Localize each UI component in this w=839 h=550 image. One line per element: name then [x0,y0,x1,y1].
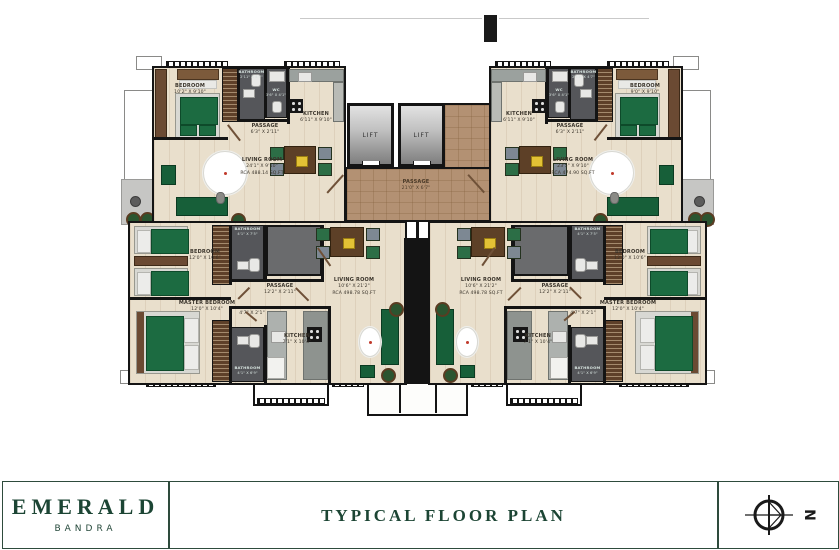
side-balcony [124,90,153,180]
lobby-label: 4'7" X 2'1" [562,311,604,318]
sofa [381,309,399,365]
living-room-label: LIVING ROOM 10'6" X 21'2" RCA 498.78 SQ.… [322,277,386,298]
deck-lamp-icon [130,196,141,207]
brand-location: BANDRA [54,524,116,534]
room-dim: 10'6" X 21'2" [449,284,513,291]
wc-label: WC 3'6" X 4'1" [265,88,287,98]
wardrobe [222,68,238,122]
room-dim: 2'11" X 4'7" [570,75,597,80]
kitchen-counter [491,69,546,82]
fridge [267,357,285,379]
room-dim: 6'3" X 2'11" [239,130,291,137]
dining-chair [507,228,521,241]
passage-label: PASSAGE 6'3" X 2'11" [544,123,596,137]
room-dim: 9'0" X 9'10" [613,90,677,97]
plant-icon [381,368,396,383]
room-dim: 2'11" X 4'7" [238,75,265,80]
bed-quilt [655,316,693,371]
room-rca: RCA 488.14 SQ.FT [230,171,294,178]
dining-chair [457,228,471,241]
wall [238,119,288,122]
bathroom-label: BATHROOM 4'1" X 6'9" [231,366,264,376]
wall [328,306,331,384]
dining-chair [507,246,521,259]
room-dim: 23'5" X 9'10" [541,164,605,171]
bed-pillow [639,125,656,136]
dining-table [330,227,364,257]
floor-plan-sheet: LIFT LIFT PASSAGE 21'0" X 6'7" BEDROOM 1… [0,0,839,550]
kitchen-sink [523,72,537,82]
lift-label: LIFT [401,106,442,164]
room-dim: 7'1" X 10'4" [268,340,326,347]
single-bed [647,268,701,296]
room-dim: 12'0" X 10'6" [599,256,661,263]
wall [264,225,267,280]
kitchen-label: KITCHEN 7'1" X 10'4" [268,333,326,347]
lobby-label: 4'7" X 2'1" [231,311,273,318]
deck-lamp-icon [694,196,705,207]
lamp-dot [369,341,372,344]
bed-pillow [640,345,655,370]
armchair [360,365,375,378]
dining-chair [505,163,519,176]
dining-chair [366,228,380,241]
dining-chair [366,246,380,259]
kitchen-label: KITCHEN 7'1" X 10'4" [509,333,567,347]
lift-shaft: LIFT [398,103,445,167]
side-table-lamp [456,327,478,357]
passage-label: PASSAGE 6'3" X 2'11" [239,123,291,137]
bathroom-label: BATHROOM 4'1" X 6'9" [571,366,604,376]
passage-label: PASSAGE 12'2" X 2'11" [252,283,308,297]
party-wall [404,238,431,384]
bathroom-label: BATHROOM 2'11" X 4'7" [570,70,597,80]
bed-pillow [640,318,655,343]
toilet [555,101,565,113]
bathroom-label: BATHROOM 4'1" X 7'5" [231,227,264,237]
room-dim: 12'0" X 10'6" [174,256,236,263]
wall [607,137,681,140]
bed-pillow [184,345,199,370]
bed [175,93,220,140]
vase [610,192,619,204]
bed-pillow [184,318,199,343]
room-dim: 21'0" X 6'7" [385,186,447,193]
fridge [550,357,568,379]
room-dim: 7'1" X 10'4" [509,340,567,347]
brand-name: EMERALD [12,496,159,518]
wardrobe [212,320,230,382]
room-dim: 4'1" X 7'5" [571,232,604,237]
single-bed [134,268,188,296]
bedroom-label: BEDROOM 10'2" X 9'10" [158,83,222,97]
room-dim: 4'7" X 2'1" [231,311,273,318]
table-decor [343,238,355,249]
living-room-label: LIVING ROOM 24'1" X 9'10" RCA 488.14 SQ.… [230,157,294,178]
wall [230,279,323,282]
passage-label: PASSAGE 12'2" X 2'11" [527,283,583,297]
sink [243,89,255,98]
bedroom-label: BEDROOM 9'0" X 9'10" [613,83,677,97]
wardrobe-panel [668,69,680,139]
master-bed [635,311,699,374]
dining-chair [318,147,332,160]
room-dim: 3'6" X 4'1" [548,93,570,98]
sink [237,261,249,270]
bed-quilt [650,271,688,296]
toilet [575,334,586,348]
entrance-protrusion [367,382,468,416]
dining-chair [457,246,471,259]
roof-ridge-line [499,18,649,19]
window-band [257,398,325,404]
wc-label: WC 3'6" X 4'1" [548,88,570,98]
room-dim: 6'11" X 9'10" [287,118,345,125]
room-dim: 4'7" X 2'1" [562,311,604,318]
title-block-brand: EMERALD BANDRA [2,481,169,549]
room-dim: 24'1" X 9'10" [230,164,294,171]
bed-pillow [199,125,216,136]
kitchen-label: KITCHEN 6'11" X 9'10" [490,111,548,125]
side-table-lamp [359,327,381,357]
room-dim: 6'3" X 2'11" [544,130,596,137]
living-room-label: LIVING ROOM 10'6" X 21'2" RCA 498.78 SQ.… [449,277,513,298]
lift-door [362,161,380,165]
bed-pillow [137,272,151,295]
toilet [272,101,282,113]
window-band [510,398,578,404]
dining-table [471,227,505,257]
armchair [460,365,475,378]
room-dim: 4'1" X 6'9" [571,371,604,376]
bedroom-label: BEDROOM 12'0" X 10'6" [599,249,661,263]
shower-tray [552,71,568,82]
headboard-shelf [616,69,658,80]
room-dim: 4'1" X 7'5" [231,232,264,237]
table-decor [296,156,308,167]
core-passage-label: PASSAGE 21'0" X 6'7" [385,179,447,193]
wall [512,279,605,282]
vase [216,192,225,204]
lamp-dot [611,172,614,175]
lamp-dot [224,172,227,175]
burners [535,102,538,105]
toilet [575,258,586,272]
mullion [399,384,401,413]
room-dim: 10'2" X 9'10" [158,90,222,97]
armchair [659,165,674,185]
plan-title: TYPICAL FLOOR PLAN [321,507,566,524]
bed-quilt [620,97,658,125]
roof-stack [484,15,497,42]
bed [615,93,660,140]
lift-label: LIFT [350,106,391,164]
sofa [436,309,454,365]
sink [586,336,598,345]
dining-chair [316,228,330,241]
burners [292,102,295,105]
wardrobe [597,68,613,122]
plant-icon [389,302,404,317]
room-dim: 3'6" X 4'1" [265,93,287,98]
toilet [249,334,260,348]
bedroom-label: BEDROOM 12'0" X 10'6" [174,249,236,263]
bed-pillow [620,125,637,136]
lift-shaft: LIFT [347,103,394,167]
sink [580,89,592,98]
mullion [435,384,437,413]
dining-chair [318,163,332,176]
shower-tray [269,71,285,82]
side-balcony [682,90,711,180]
core-passage-floor [443,103,492,169]
room-rca: RCA 474.90 SQ.FT [541,171,605,178]
room-dim: 12'2" X 2'11" [252,290,308,297]
bathroom-label: BATHROOM 4'1" X 7'5" [571,227,604,237]
plant-icon [435,302,450,317]
utility-room [266,225,322,276]
bed-pillow [137,230,151,253]
headboard-shelf [177,69,219,80]
bed-quilt [151,271,189,296]
bed-quilt [180,97,218,125]
room-rca: RCA 498.78 SQ.FT [322,291,386,298]
title-block-compass: N [718,481,839,549]
armchair [161,165,176,185]
roof-ridge-line [300,18,482,19]
compass-north-letter: N [801,509,817,521]
wall [547,119,597,122]
title-block-title: TYPICAL FLOOR PLAN [169,481,718,549]
room-dim: 6'11" X 9'10" [490,118,548,125]
lift-door [413,161,431,165]
lamp-dot [466,341,469,344]
room-dim: 12'2" X 2'11" [527,290,583,297]
room-dim: 4'1" X 6'9" [231,371,264,376]
sink [237,336,249,345]
utility-room [513,225,569,276]
wardrobe [605,320,623,382]
kitchen-label: KITCHEN 6'11" X 9'10" [287,111,345,125]
kitchen-counter [289,69,344,82]
room-rca: RCA 498.78 SQ.FT [449,291,513,298]
room-dim: 10'6" X 21'2" [322,284,386,291]
living-room-label: LIVING ROOM 23'5" X 9'10" RCA 474.90 SQ.… [541,157,605,178]
bed-quilt [146,316,184,371]
toilet [249,258,260,272]
wardrobe-panel [155,69,167,139]
sink [586,261,598,270]
bathroom-label: BATHROOM 2'11" X 4'7" [238,70,265,80]
dining-chair [505,147,519,160]
kitchen-sink [298,72,312,82]
bed-pillow [180,125,197,136]
headboard [137,312,144,373]
plant-icon [443,368,458,383]
wall [154,137,228,140]
master-bed [136,311,200,374]
